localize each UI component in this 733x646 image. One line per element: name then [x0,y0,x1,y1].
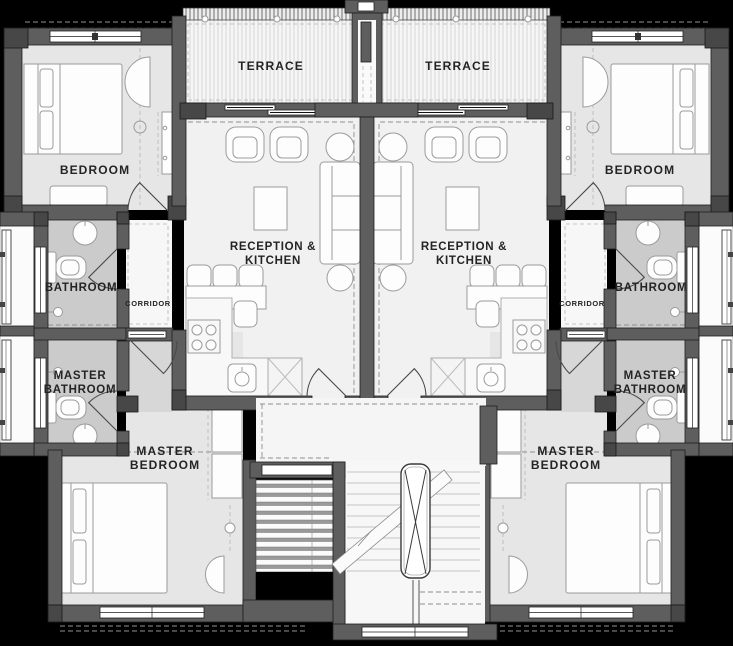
room-label-bedroom-right: BEDROOM [605,163,675,177]
room-label-bedroom-left: BEDROOM [60,163,130,177]
room-label-master-bedroom-left-2: BEDROOM [130,458,200,472]
stair-mid-wall [333,462,345,628]
party-wall [360,117,374,410]
room-label-reception-left-2: KITCHEN [245,255,301,267]
divider-niche-block [361,22,371,62]
room-label-master-bathroom-right-2: BATHROOM [614,384,686,396]
room-label-terrace-left: TERRACE [238,59,304,73]
divider-t-wall [315,103,418,117]
room-label-bathroom-left: BATHROOM [45,282,117,294]
room-label-reception-right-2: KITCHEN [436,255,492,267]
stair-flight-icon [256,480,333,572]
entry-hall-floor [256,398,486,466]
floor-plan-canvas: TERRACE TERRACE BEDROOM BEDROOM RECEPTIO… [0,0,733,646]
floor-plan: TERRACE TERRACE BEDROOM BEDROOM RECEPTIO… [0,0,733,646]
room-label-corridor-right: CORRIDOR [559,299,605,308]
room-label-reception-right-1: RECEPTION & [421,241,507,253]
divider-cap-notch [358,2,374,11]
room-label-bathroom-right: BATHROOM [615,282,687,294]
elevator-icon [401,464,430,578]
room-label-master-bathroom-right-1: MASTER [624,370,677,382]
room-label-terrace-right: TERRACE [425,59,491,73]
window-icon [262,465,332,475]
stair-east-wall [480,406,497,464]
window-icon [362,627,468,637]
stair-south-wall [243,600,345,622]
room-label-corridor-left: CORRIDOR [125,299,171,308]
room-label-reception-left-1: RECEPTION & [230,241,316,253]
room-label-master-bathroom-left-2: BATHROOM [44,384,116,396]
room-label-master-bedroom-right-1: MASTER [537,444,594,458]
room-label-master-bedroom-right-2: BEDROOM [531,458,601,472]
room-label-master-bedroom-left-1: MASTER [136,444,193,458]
room-label-master-bathroom-left-1: MASTER [54,370,107,382]
